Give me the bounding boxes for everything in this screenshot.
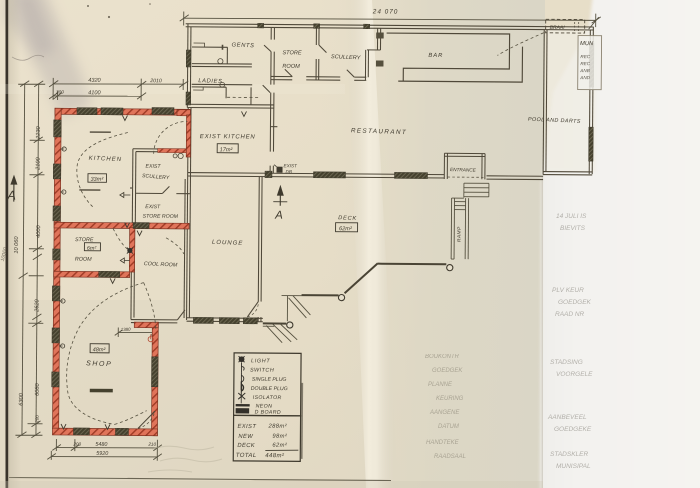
svg-text:288m²: 288m²: [267, 424, 287, 430]
svg-text:LADIES: LADIES: [198, 78, 222, 85]
svg-text:DECK: DECK: [338, 215, 357, 222]
svg-text:200: 200: [55, 89, 64, 94]
svg-text:DB: DB: [285, 169, 291, 174]
svg-text:200: 200: [35, 415, 40, 424]
svg-text:ENTRANCE: ENTRANCE: [450, 167, 477, 173]
svg-text:6300: 6300: [19, 392, 25, 405]
svg-text:LIGHT: LIGHT: [251, 358, 270, 364]
svg-text:REC: REC: [580, 61, 590, 66]
svg-text:STADSKLER: STADSKLER: [550, 451, 588, 458]
svg-text:4100: 4100: [88, 90, 101, 96]
svg-text:DOUBLE PLUG: DOUBLE PLUG: [251, 386, 288, 392]
svg-text:17m²: 17m²: [220, 147, 234, 153]
svg-text:TOTAL: TOTAL: [236, 453, 257, 459]
svg-text:NEW: NEW: [238, 434, 253, 440]
svg-text:2620: 2620: [34, 298, 40, 312]
svg-text:GOEDGEKE: GOEDGEKE: [554, 426, 592, 433]
svg-text:2230: 2230: [36, 125, 42, 139]
svg-text:AANBEVEEL: AANBEVEEL: [547, 414, 587, 421]
svg-text:GOEDGEK: GOEDGEK: [432, 368, 463, 374]
svg-text:4000: 4000: [36, 224, 42, 237]
svg-text:MUNISIPAL: MUNISIPAL: [556, 463, 591, 470]
svg-text:2010: 2010: [149, 78, 162, 84]
svg-text:98m²: 98m²: [272, 434, 288, 440]
svg-text:GENTS: GENTS: [231, 42, 254, 49]
svg-text:24 070: 24 070: [372, 8, 399, 15]
svg-text:A: A: [6, 188, 16, 203]
svg-text:PLV KEUR: PLV KEUR: [552, 287, 584, 294]
svg-text:62m²: 62m²: [339, 226, 353, 232]
svg-text:2100: 2100: [36, 156, 42, 170]
svg-text:KEURING: KEURING: [436, 396, 464, 402]
svg-text:448m²: 448m²: [265, 453, 285, 459]
svg-text:EXIST: EXIST: [145, 204, 161, 210]
svg-text:REC: REC: [580, 54, 590, 59]
svg-text:ISOLATOR: ISOLATOR: [253, 395, 282, 401]
svg-text:MUN: MUN: [580, 41, 594, 47]
svg-text:48m²: 48m²: [93, 347, 107, 353]
svg-text:RAAD NR: RAAD NR: [555, 311, 585, 318]
svg-text:DECK: DECK: [237, 443, 255, 449]
svg-text:AANGENE: AANGENE: [429, 410, 460, 416]
svg-text:BRAAI: BRAAI: [550, 25, 566, 31]
svg-text:200: 200: [72, 442, 81, 447]
svg-text:6080: 6080: [35, 382, 41, 395]
svg-text:33m²: 33m²: [90, 177, 104, 183]
svg-text:STORE: STORE: [282, 50, 301, 56]
svg-text:AND: AND: [579, 75, 590, 80]
svg-text:DATUM: DATUM: [438, 424, 459, 430]
svg-text:D BOARD: D BOARD: [255, 410, 281, 416]
svg-text:6m²: 6m²: [87, 246, 97, 252]
svg-text:VOORGELE: VOORGELE: [556, 371, 593, 378]
svg-text:14 JULI IS: 14 JULI IS: [556, 213, 587, 220]
svg-text:5920: 5920: [96, 451, 108, 457]
svg-text:GOEDGEK: GOEDGEK: [558, 299, 592, 306]
svg-text:RAADSAAL: RAADSAAL: [434, 454, 466, 460]
svg-text:62m²: 62m²: [272, 443, 288, 449]
svg-text:SHOP: SHOP: [86, 360, 113, 368]
svg-text:STORE ROOM: STORE ROOM: [143, 214, 179, 220]
svg-text:STADSING: STADSING: [550, 359, 583, 366]
svg-text:SWITCH: SWITCH: [250, 367, 274, 373]
svg-text:HANDTEKE: HANDTEKE: [426, 440, 460, 446]
svg-text:5480: 5480: [95, 442, 107, 448]
svg-text:4320: 4320: [88, 78, 101, 84]
svg-text:BOUKONTR: BOUKONTR: [425, 354, 460, 360]
svg-text:ROOM: ROOM: [75, 257, 92, 263]
svg-text:ANB: ANB: [579, 68, 589, 73]
svg-text:PLANNE: PLANNE: [428, 382, 453, 388]
svg-text:EXIST: EXIST: [146, 164, 162, 170]
svg-text:EXIST KITCHEN: EXIST KITCHEN: [200, 134, 256, 140]
svg-text:SINGLE PLUG: SINGLE PLUG: [252, 377, 287, 383]
svg-text:ROOM: ROOM: [282, 64, 300, 70]
svg-text:10 060: 10 060: [14, 236, 20, 254]
svg-text:1380: 1380: [121, 327, 131, 332]
svg-text:EXIST: EXIST: [237, 424, 256, 430]
svg-text:RAMP: RAMP: [456, 226, 462, 242]
svg-text:210: 210: [147, 442, 156, 447]
svg-text:BIEVITS: BIEVITS: [560, 225, 586, 232]
svg-text:EXIST: EXIST: [284, 163, 299, 168]
svg-text:BAR: BAR: [428, 53, 443, 59]
svg-text:A: A: [274, 210, 283, 222]
